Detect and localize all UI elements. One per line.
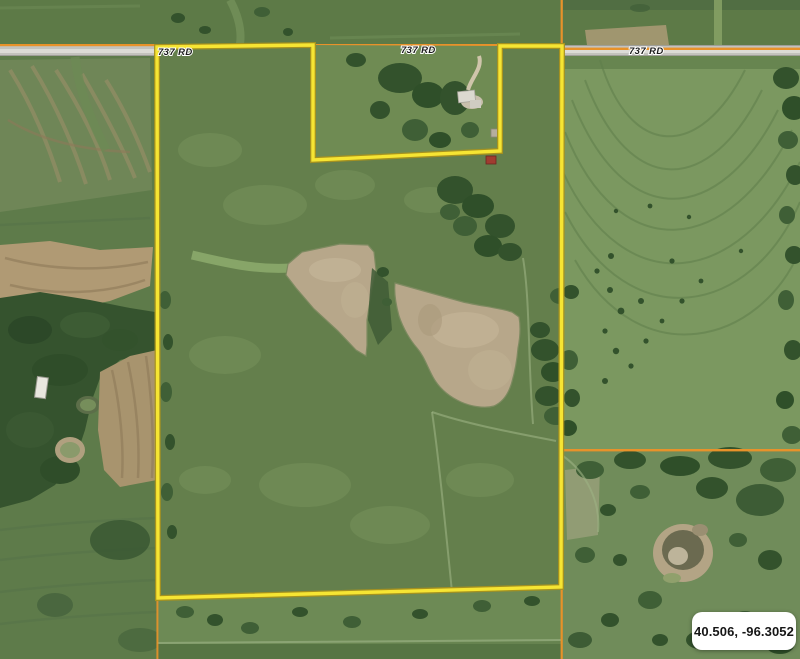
section-line-north: [561, 0, 563, 46]
aerial-map-canvas[interactable]: 737 RD 737 RD 737 RD: [0, 0, 800, 659]
east-contour-field: [559, 56, 800, 450]
section-line-southwest: [156, 598, 158, 659]
south-scrub: [157, 589, 562, 659]
north-fields: [0, 0, 800, 45]
road-label-737-center: 737 RD: [401, 45, 436, 56]
section-line-road-east: [563, 48, 800, 50]
section-line-south: [561, 587, 563, 659]
small-white-building: [35, 376, 49, 398]
section-line-east: [563, 449, 800, 451]
farmstead-notch: [313, 45, 500, 160]
coordinate-tooltip: 40.506, -96.3052: [692, 612, 796, 650]
road-label-737-east: 737 RD: [629, 46, 664, 57]
farm-house-wing: [470, 100, 481, 108]
west-fields: [0, 56, 162, 659]
red-roof-building: [486, 156, 496, 164]
aerial-map-viewport[interactable]: 737 RD 737 RD 737 RD 40.506, -96.3052: [0, 0, 800, 659]
road-label-737-west: 737 RD: [158, 47, 193, 58]
